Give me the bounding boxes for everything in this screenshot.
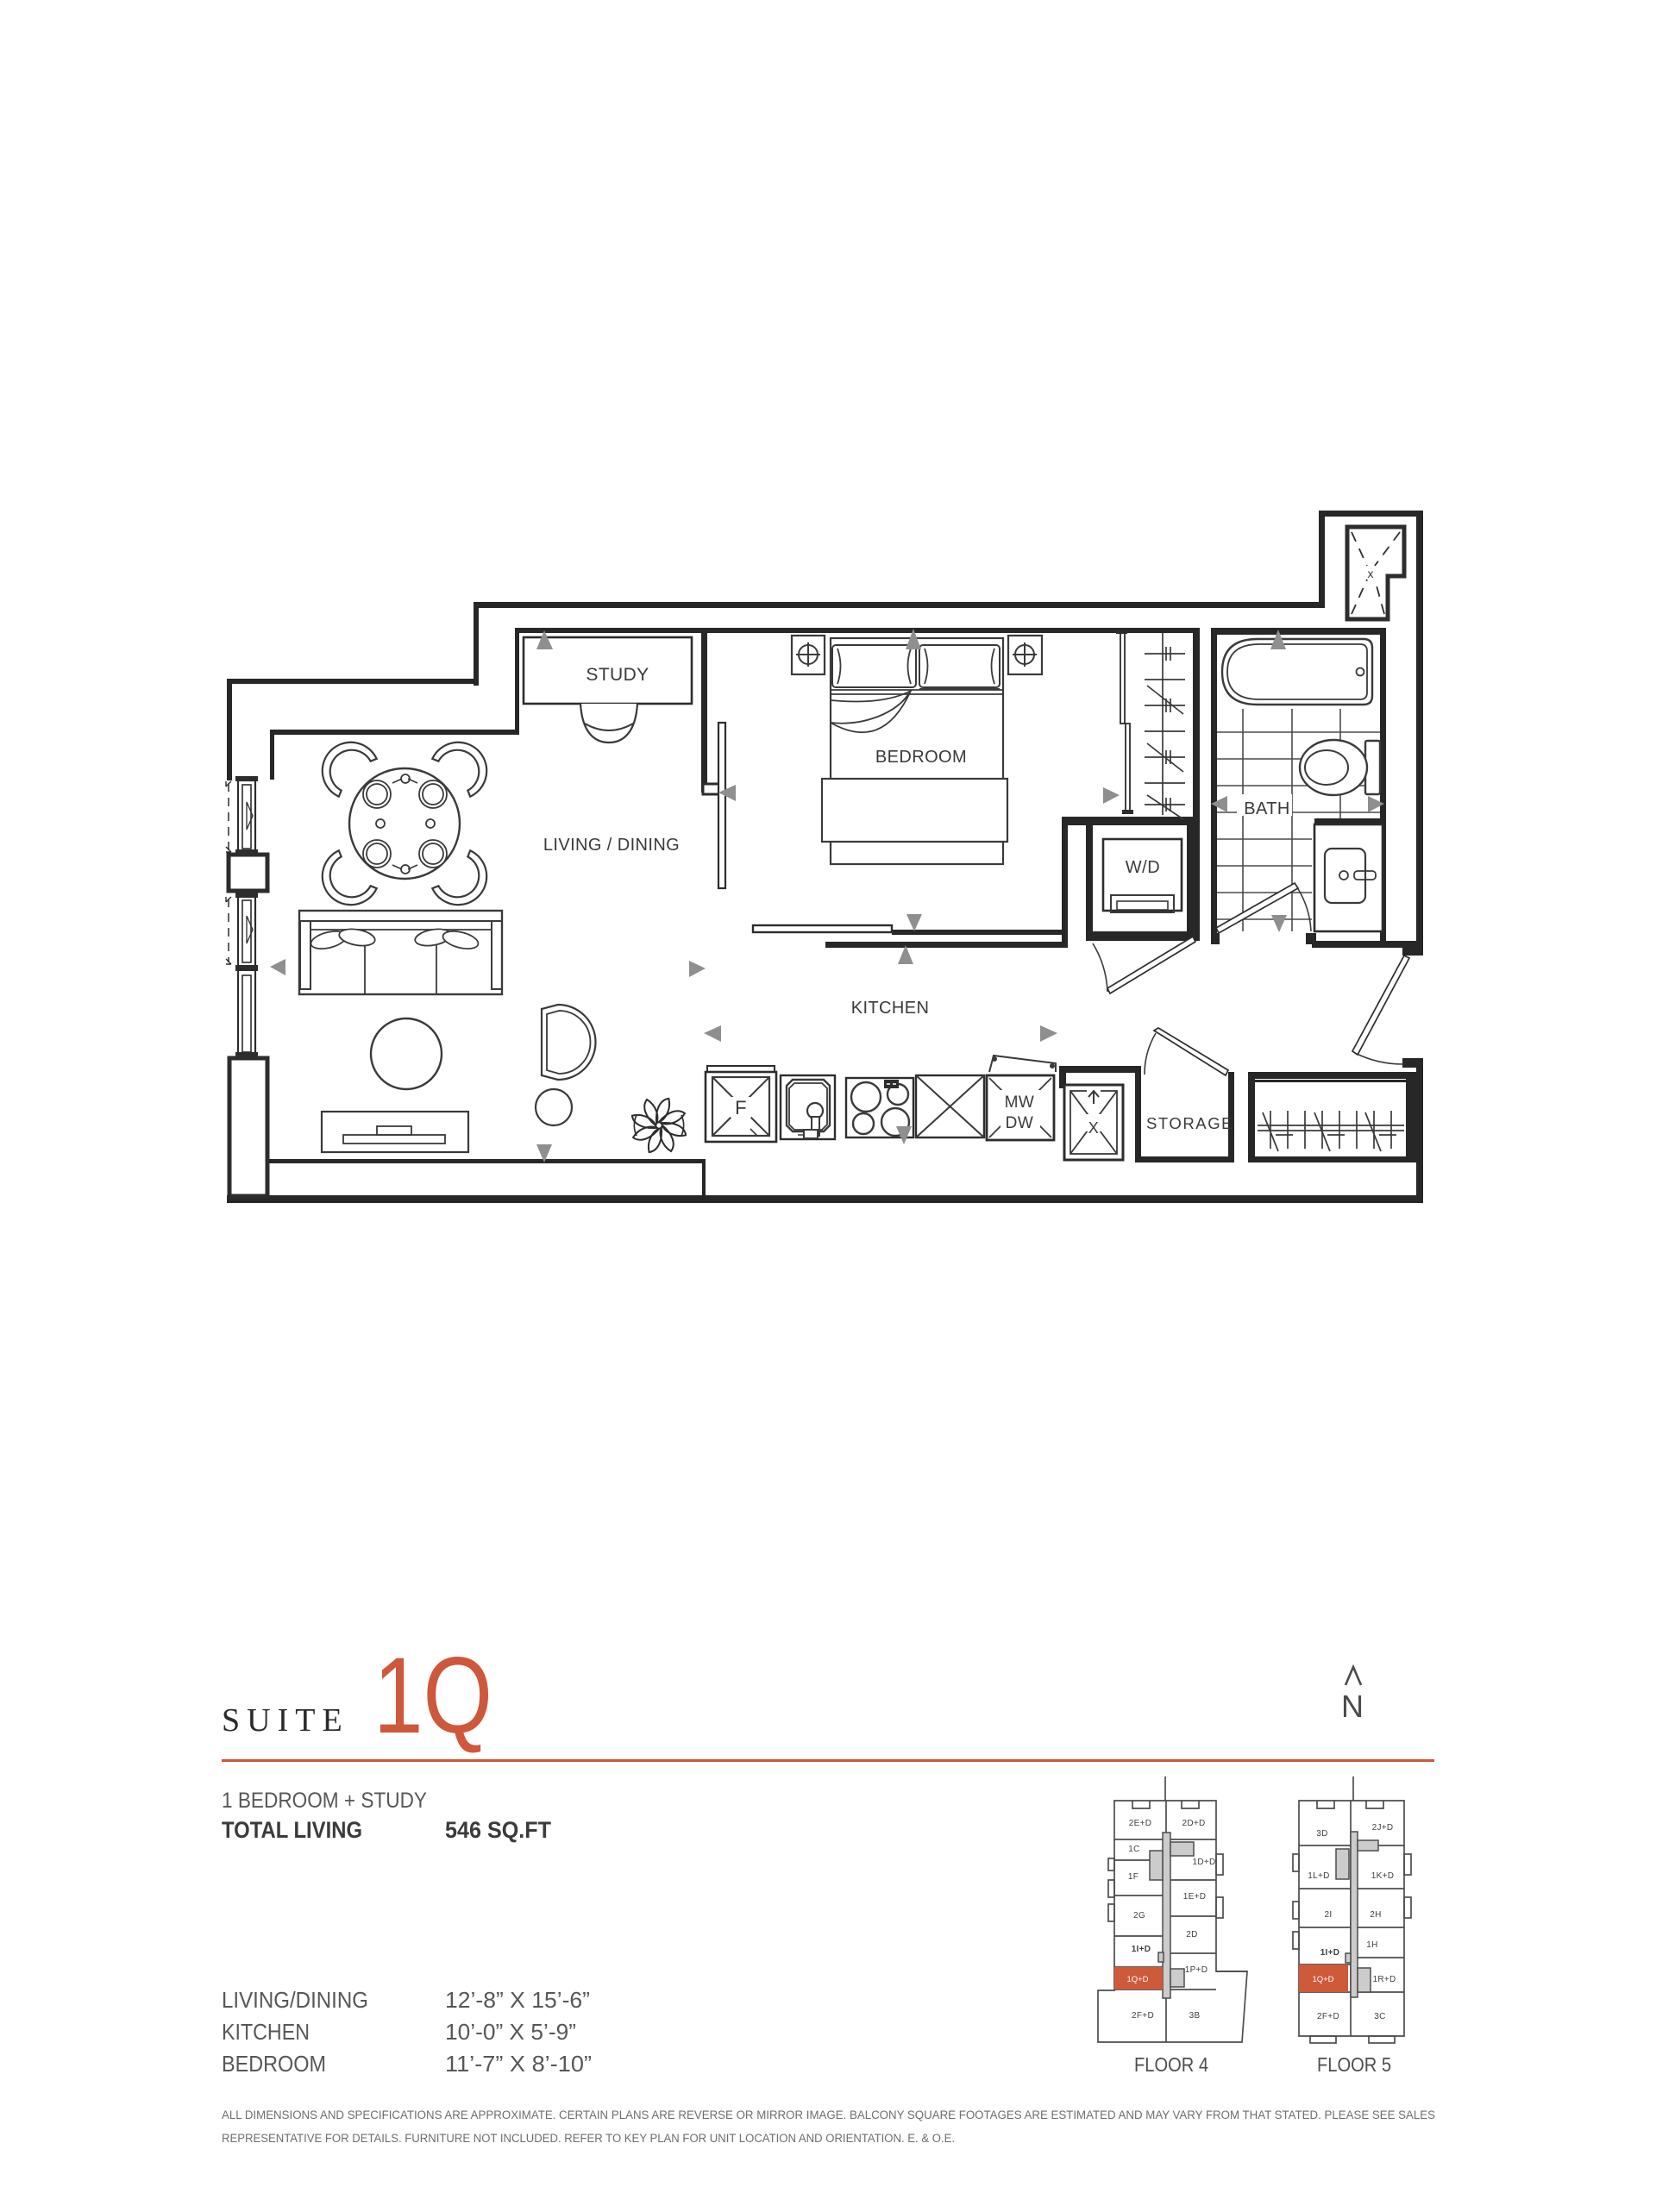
- svg-text:FLOOR 5: FLOOR 5: [1317, 2053, 1391, 2076]
- svg-text:1 BEDROOM + STUDY: 1 BEDROOM + STUDY: [222, 1789, 427, 1813]
- svg-text:546 SQ.FT: 546 SQ.FT: [445, 1817, 551, 1843]
- svg-text:2D+D: 2D+D: [1182, 1819, 1205, 1828]
- svg-text:1I+D: 1I+D: [1132, 1945, 1151, 1954]
- svg-text:1H: 1H: [1366, 1940, 1377, 1950]
- svg-text:1L+D: 1L+D: [1308, 1871, 1329, 1881]
- svg-text:2F+D: 2F+D: [1132, 2011, 1154, 2021]
- svg-text:x: x: [1368, 567, 1374, 580]
- svg-text:BATH: BATH: [1244, 799, 1289, 818]
- svg-text:12’-8” X 15’-6”: 12’-8” X 15’-6”: [445, 1987, 590, 2013]
- svg-text:BEDROOM: BEDROOM: [875, 748, 967, 767]
- svg-text:3C: 3C: [1374, 2012, 1385, 2021]
- svg-text:ALL DIMENSIONS AND SPECIFICATI: ALL DIMENSIONS AND SPECIFICATIONS ARE AP…: [222, 2109, 1435, 2121]
- svg-text:1Q+D: 1Q+D: [1126, 1975, 1148, 1984]
- svg-text:1D+D: 1D+D: [1192, 1858, 1215, 1867]
- svg-text:11’-7” X 8’-10”: 11’-7” X 8’-10”: [445, 2051, 592, 2077]
- svg-text:2I: 2I: [1325, 1910, 1333, 1920]
- svg-text:1P+D: 1P+D: [1185, 1965, 1208, 1975]
- svg-text:TOTAL LIVING: TOTAL LIVING: [222, 1817, 362, 1843]
- svg-text:3B: 3B: [1189, 2011, 1201, 2021]
- svg-text:1R+D: 1R+D: [1372, 1975, 1396, 1984]
- svg-text:BEDROOM: BEDROOM: [222, 2051, 326, 2077]
- svg-text:1Q+D: 1Q+D: [1312, 1975, 1333, 1984]
- svg-text:LIVING/DINING: LIVING/DINING: [222, 1987, 368, 2013]
- svg-text:1F: 1F: [1128, 1872, 1138, 1882]
- svg-text:KITCHEN: KITCHEN: [851, 999, 930, 1018]
- svg-text:1C: 1C: [1128, 1845, 1139, 1854]
- svg-text:KITCHEN: KITCHEN: [222, 2019, 310, 2045]
- svg-text:MW: MW: [1005, 1093, 1035, 1112]
- svg-text:2H: 2H: [1370, 1910, 1381, 1920]
- svg-text:W/D: W/D: [1126, 858, 1160, 877]
- svg-text:STUDY: STUDY: [586, 665, 649, 685]
- svg-text:1E+D: 1E+D: [1183, 1892, 1207, 1902]
- svg-text:X: X: [1088, 1119, 1099, 1137]
- svg-text:FLOOR 4: FLOOR 4: [1134, 2053, 1208, 2076]
- svg-text:1I+D: 1I+D: [1320, 1948, 1340, 1958]
- svg-text:1Q: 1Q: [373, 1636, 492, 1756]
- svg-text:STORAGE: STORAGE: [1146, 1114, 1233, 1132]
- svg-text:REPRESENTATIVE FOR DETAILS. FU: REPRESENTATIVE FOR DETAILS. FURNITURE NO…: [222, 2132, 955, 2145]
- svg-text:SUITE: SUITE: [222, 1702, 349, 1739]
- svg-text:2E+D: 2E+D: [1129, 1819, 1152, 1828]
- svg-text:N: N: [1341, 1689, 1364, 1724]
- svg-text:2J+D: 2J+D: [1372, 1823, 1394, 1833]
- svg-text:2D: 2D: [1186, 1930, 1197, 1939]
- svg-text:10’-0” X 5’-9”: 10’-0” X 5’-9”: [445, 2019, 576, 2045]
- svg-text:2G: 2G: [1133, 1911, 1145, 1921]
- svg-text:DW: DW: [1006, 1114, 1034, 1132]
- svg-text:F: F: [735, 1097, 747, 1119]
- svg-text:3D: 3D: [1316, 1829, 1327, 1839]
- svg-text:LIVING / DINING: LIVING / DINING: [543, 836, 680, 855]
- svg-text:2F+D: 2F+D: [1317, 2012, 1339, 2021]
- svg-text:1K+D: 1K+D: [1371, 1871, 1395, 1881]
